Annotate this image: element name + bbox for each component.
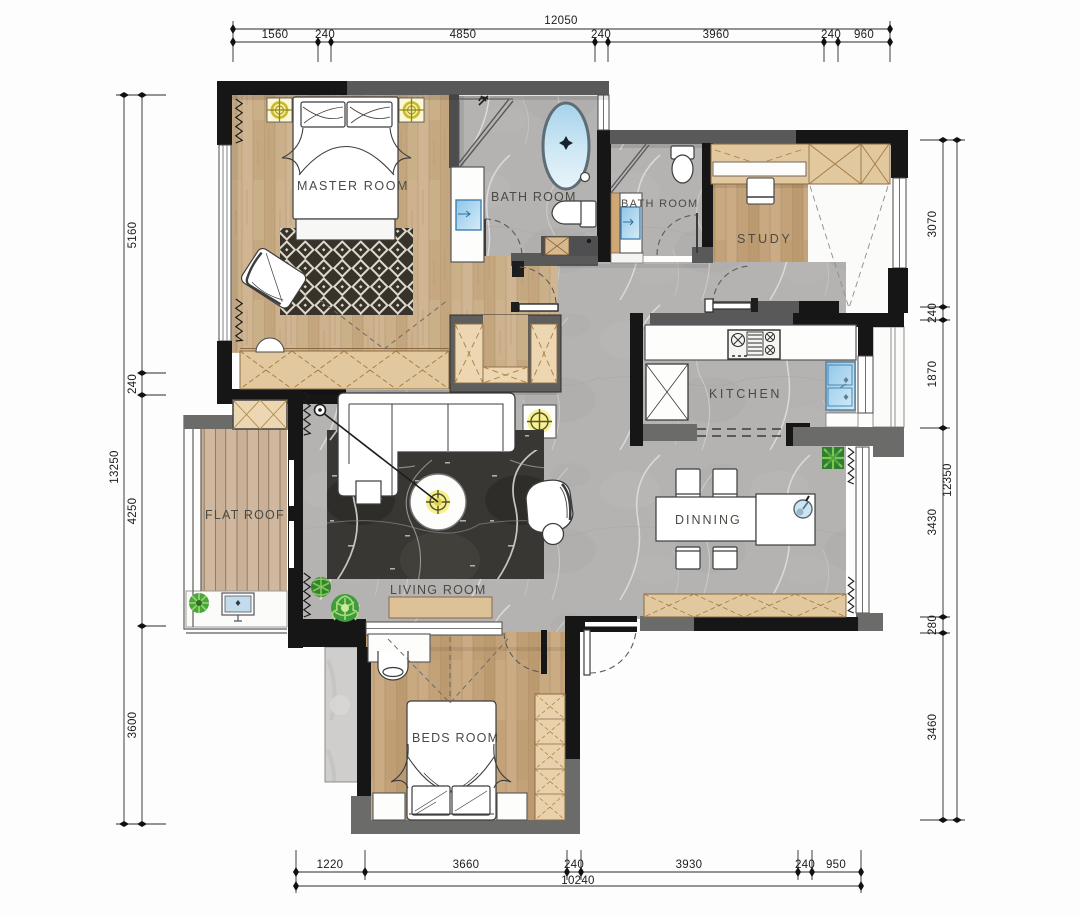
svg-text:1220: 1220 <box>317 859 344 871</box>
svg-text:3660: 3660 <box>453 859 480 871</box>
svg-text:240: 240 <box>127 374 139 394</box>
svg-text:4250: 4250 <box>127 498 139 525</box>
svg-text:280: 280 <box>927 615 939 635</box>
svg-text:950: 950 <box>826 859 846 871</box>
svg-text:240: 240 <box>591 29 611 41</box>
svg-text:MASTER ROOM: MASTER ROOM <box>297 179 409 193</box>
svg-text:240: 240 <box>315 29 335 41</box>
svg-text:240: 240 <box>795 859 815 871</box>
svg-text:DINNING: DINNING <box>675 513 742 527</box>
svg-text:KITCHEN: KITCHEN <box>709 387 782 401</box>
svg-text:12050: 12050 <box>544 15 577 27</box>
svg-text:4850: 4850 <box>450 29 477 41</box>
svg-text:240: 240 <box>564 859 584 871</box>
svg-text:12350: 12350 <box>942 463 954 496</box>
svg-text:3960: 3960 <box>703 29 730 41</box>
svg-text:FLAT ROOF: FLAT ROOF <box>205 508 285 522</box>
svg-text:3930: 3930 <box>676 859 703 871</box>
svg-text:BATH ROOM: BATH ROOM <box>491 190 577 204</box>
svg-text:240: 240 <box>927 303 939 323</box>
svg-text:13250: 13250 <box>109 450 121 483</box>
svg-text:3600: 3600 <box>127 712 139 739</box>
svg-text:3460: 3460 <box>927 714 939 741</box>
svg-text:3430: 3430 <box>927 509 939 536</box>
svg-text:BEDS ROOM: BEDS ROOM <box>412 731 499 745</box>
svg-text:1560: 1560 <box>262 29 289 41</box>
svg-text:960: 960 <box>854 29 874 41</box>
svg-text:240: 240 <box>821 29 841 41</box>
svg-text:LIVING ROOM: LIVING ROOM <box>390 583 487 597</box>
svg-text:1870: 1870 <box>927 361 939 388</box>
svg-text:STUDY: STUDY <box>737 232 792 246</box>
svg-text:BATH ROOM: BATH ROOM <box>621 198 699 210</box>
svg-text:10240: 10240 <box>561 875 594 887</box>
svg-text:5160: 5160 <box>127 222 139 249</box>
svg-text:3070: 3070 <box>927 211 939 238</box>
